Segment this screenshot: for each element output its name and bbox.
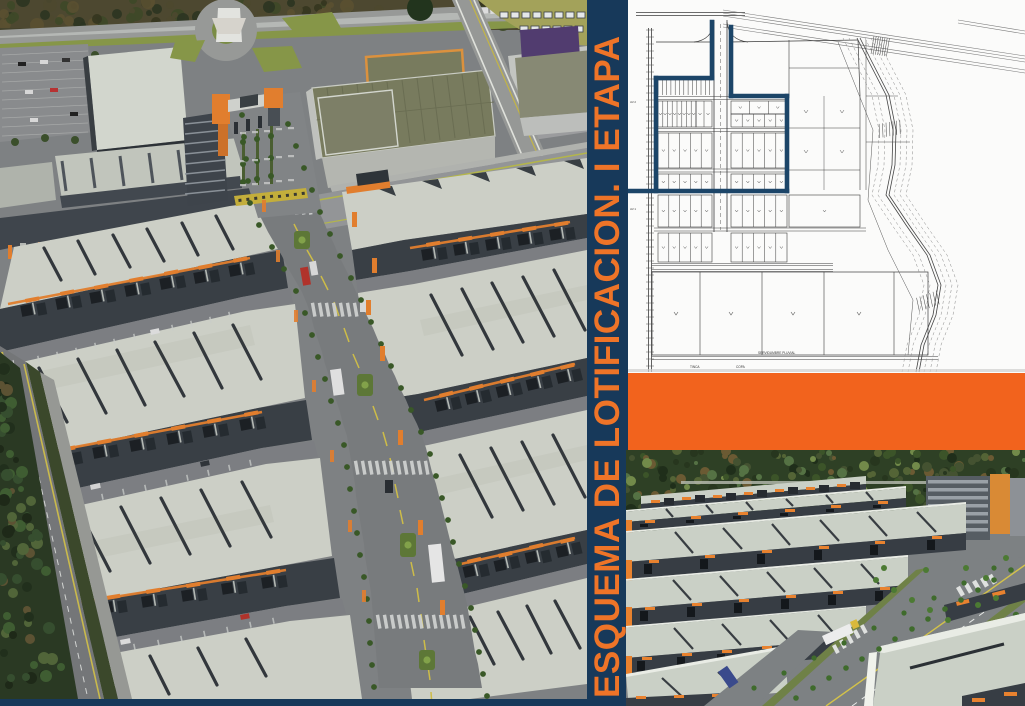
svg-text:AV.1: AV.1 xyxy=(630,207,636,211)
svg-text:TINCA: TINCA xyxy=(690,365,700,369)
svg-text:COPA: COPA xyxy=(736,365,746,369)
svg-text:SERVIDUMBRE PLUVIAL: SERVIDUMBRE PLUVIAL xyxy=(758,351,796,355)
svg-text:AV.2: AV.2 xyxy=(630,100,636,104)
